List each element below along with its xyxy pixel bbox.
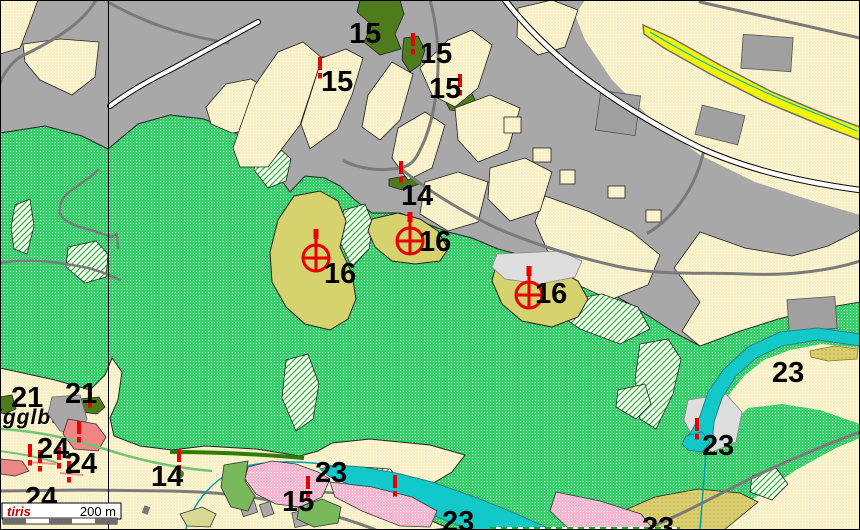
map-window: igglberg <box>0 0 860 530</box>
parcel-number-label: 16 <box>419 226 451 258</box>
scale-label: 200 m <box>80 504 116 519</box>
parcel-number-label: 21 <box>65 378 97 410</box>
warning-marker-icon[interactable] <box>411 33 415 55</box>
warning-marker-icon[interactable] <box>77 421 81 443</box>
building <box>646 210 661 222</box>
parcel-number-label: 16 <box>535 278 567 310</box>
building <box>608 186 625 198</box>
building <box>504 117 521 133</box>
parcel-number-label: 23 <box>702 430 734 462</box>
building <box>533 148 551 162</box>
parcel-number-label: 24 <box>65 448 97 480</box>
parcel-number-label: 23 <box>442 506 474 530</box>
warning-marker-icon[interactable] <box>695 418 699 440</box>
scale-panel: tiris 200 m <box>2 503 121 524</box>
parcel-number-label: 16 <box>324 258 356 290</box>
attribution-logo: tiris <box>7 504 31 519</box>
warning-marker-icon[interactable] <box>28 444 32 466</box>
scale-bar-segment <box>3 518 26 524</box>
parcel-number-label: 15 <box>420 38 452 70</box>
scale-bar-segment <box>49 518 72 524</box>
warning-marker-icon[interactable] <box>393 475 397 497</box>
parcel-number-label: 23 <box>642 512 674 530</box>
parcel-number-label: 21 <box>11 382 43 414</box>
parcel-number-label: 15 <box>321 66 353 98</box>
parcel-number-label: 23 <box>772 357 804 389</box>
parcel-number-label: 23 <box>315 457 347 489</box>
building <box>787 296 837 331</box>
building <box>560 170 575 184</box>
parcel-number-label: 15 <box>282 486 314 518</box>
scale-bar-segment <box>95 518 117 524</box>
parcel-number-label: 14 <box>401 180 433 212</box>
parcel-number-label: 15 <box>429 73 461 105</box>
parcel-number-label: 14 <box>151 461 183 493</box>
map-canvas[interactable]: igglberg <box>0 0 860 530</box>
parcel-number-label: 15 <box>349 18 381 50</box>
building <box>741 34 793 71</box>
